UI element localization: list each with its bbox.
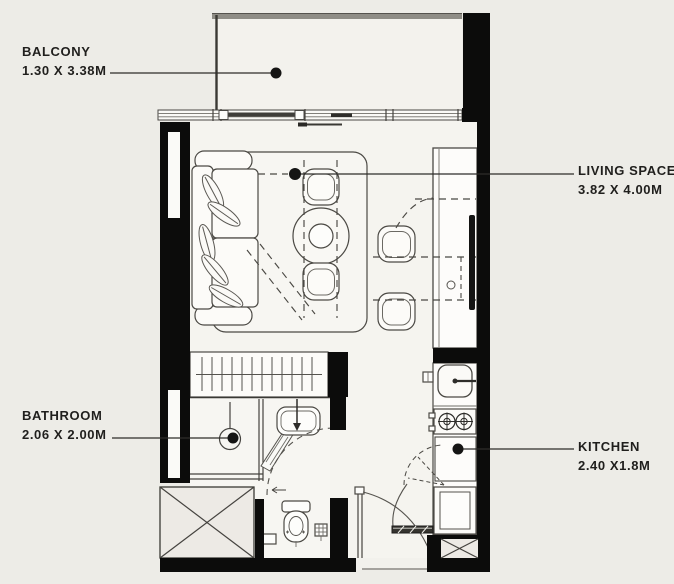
kitchen-dimensions: 2.40 X1.8M — [578, 456, 651, 475]
kitchen-sink — [438, 365, 476, 397]
wall-bottom-left — [160, 558, 356, 572]
kitchen-label: KITCHEN 2.40 X1.8M — [578, 437, 651, 475]
door-handle — [331, 114, 352, 118]
sliding-panel — [225, 113, 299, 117]
living-space-label: LIVING SPACE 3.82 X 4.00M — [578, 161, 674, 199]
dining-table — [293, 208, 349, 264]
living-dot — [289, 168, 301, 180]
bathroom-dot — [228, 433, 239, 444]
step-box — [262, 534, 276, 544]
wall-bath-bottom — [330, 498, 348, 572]
kitchen-dot — [453, 444, 464, 455]
floor-plan-drawing — [0, 0, 674, 584]
bar-chair-2 — [378, 293, 415, 330]
balcony-name: BALCONY — [22, 42, 107, 61]
wall-window-slit — [168, 390, 180, 478]
balcony-label: BALCONY 1.30 X 3.38M — [22, 42, 107, 80]
bathroom-label: BATHROOM 2.06 X 2.00M — [22, 406, 107, 444]
wardrobe — [190, 352, 328, 397]
wall-right — [477, 122, 490, 572]
bathroom-name: BATHROOM — [22, 406, 107, 425]
wall-bath-top — [330, 397, 346, 430]
living-space-dimensions: 3.82 X 4.00M — [578, 180, 674, 199]
dining-chair-bottom — [303, 263, 339, 300]
wall-shaft-divider — [255, 499, 264, 560]
kitchen-cabinet — [435, 437, 476, 481]
living-space-name: LIVING SPACE — [578, 161, 674, 180]
balcony-dimensions: 1.30 X 3.38M — [22, 61, 107, 80]
wall-balcony-right — [463, 13, 490, 108]
stove — [429, 409, 476, 434]
shaft-void — [160, 487, 254, 558]
wall-wardrobe-stub — [328, 352, 348, 397]
wall-kitchen-stub — [433, 348, 477, 363]
kitchen-name: KITCHEN — [578, 437, 651, 456]
balcony-dot — [271, 68, 282, 79]
wall-window-slit — [168, 132, 180, 218]
wall-tv — [469, 215, 475, 310]
bathroom-dimensions: 2.06 X 2.00M — [22, 425, 107, 444]
sofa — [192, 151, 258, 325]
floor-plan: BALCONY 1.30 X 3.38M LIVING SPACE 3.82 X… — [0, 0, 674, 584]
